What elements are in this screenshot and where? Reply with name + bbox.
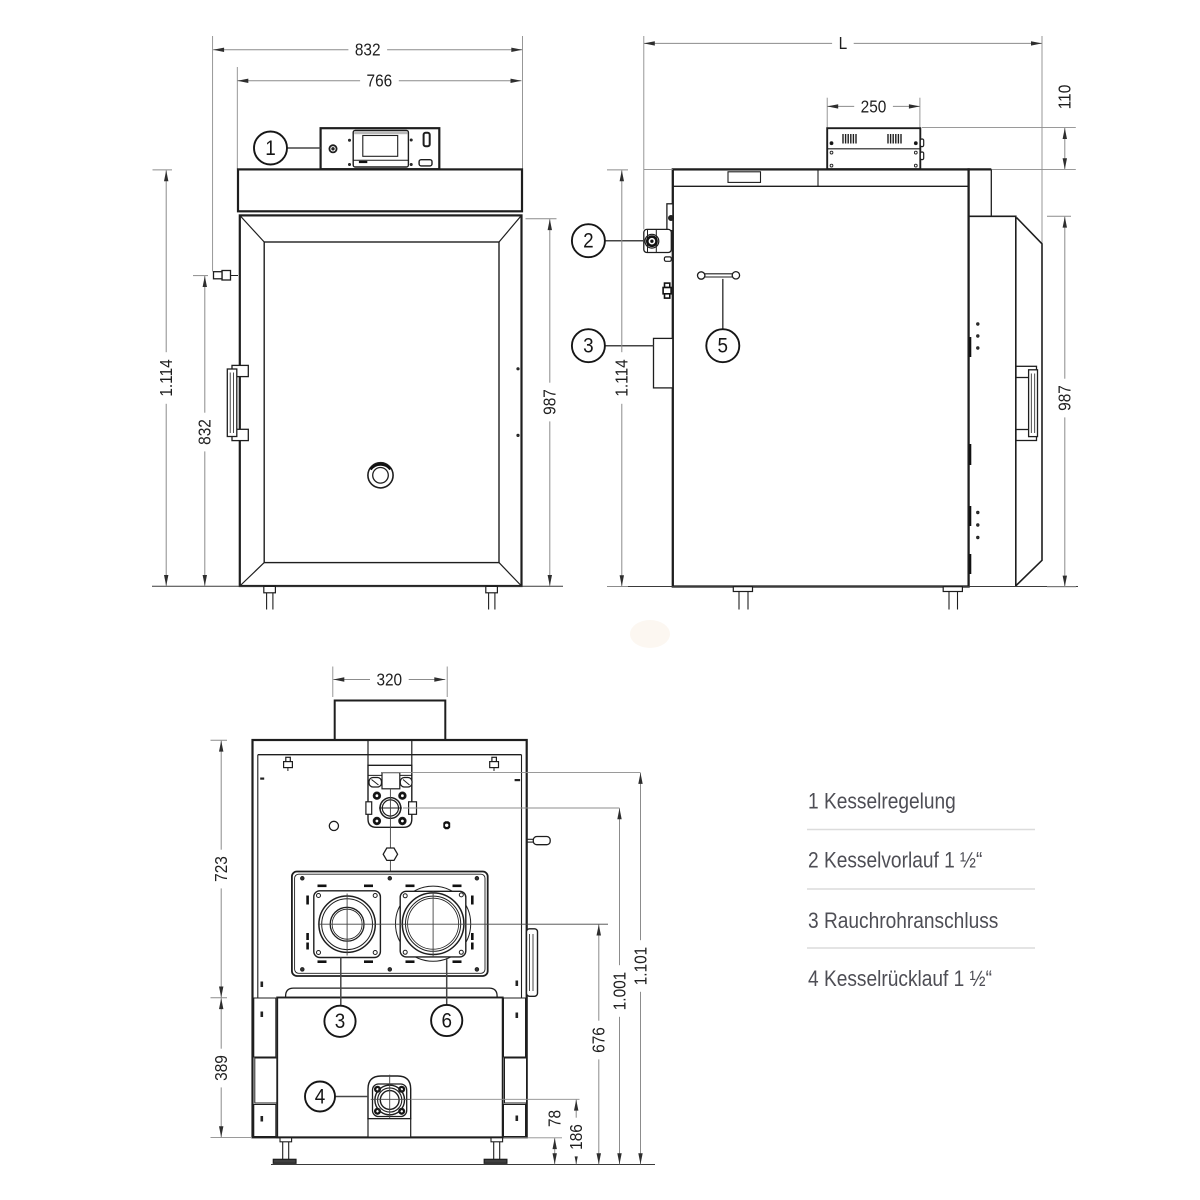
- svg-text:832: 832: [195, 419, 215, 445]
- svg-text:6: 6: [441, 1009, 452, 1032]
- svg-text:L: L: [839, 33, 848, 53]
- svg-text:78: 78: [545, 1110, 565, 1127]
- svg-text:5: 5: [718, 335, 729, 358]
- svg-text:4: 4: [315, 1085, 326, 1108]
- svg-text:723: 723: [211, 856, 231, 882]
- svg-text:987: 987: [1055, 385, 1075, 411]
- svg-text:389: 389: [211, 1055, 231, 1081]
- svg-text:3: 3: [583, 335, 594, 358]
- svg-text:110: 110: [1055, 85, 1075, 110]
- svg-text:1 Kesselregelung: 1 Kesselregelung: [808, 789, 956, 814]
- svg-text:987: 987: [540, 389, 560, 415]
- svg-text:832: 832: [355, 40, 381, 60]
- svg-text:1: 1: [265, 137, 276, 160]
- svg-text:2 Kesselvorlauf 1 ½“: 2 Kesselvorlauf 1 ½“: [808, 848, 983, 873]
- svg-text:1.114: 1.114: [156, 359, 176, 396]
- svg-text:320: 320: [376, 669, 402, 689]
- svg-text:3 Rauchrohranschluss: 3 Rauchrohranschluss: [808, 909, 998, 934]
- svg-text:676: 676: [589, 1027, 609, 1053]
- svg-text:1.101: 1.101: [630, 947, 650, 986]
- svg-text:766: 766: [367, 71, 393, 91]
- svg-text:3: 3: [335, 1010, 346, 1033]
- svg-text:1.114: 1.114: [612, 359, 632, 396]
- svg-text:250: 250: [861, 96, 887, 116]
- svg-text:186: 186: [566, 1124, 586, 1150]
- svg-text:4 Kesselrücklauf 1 ½“: 4 Kesselrücklauf 1 ½“: [808, 967, 992, 992]
- svg-text:1.001: 1.001: [609, 972, 629, 1011]
- svg-text:2: 2: [583, 230, 594, 253]
